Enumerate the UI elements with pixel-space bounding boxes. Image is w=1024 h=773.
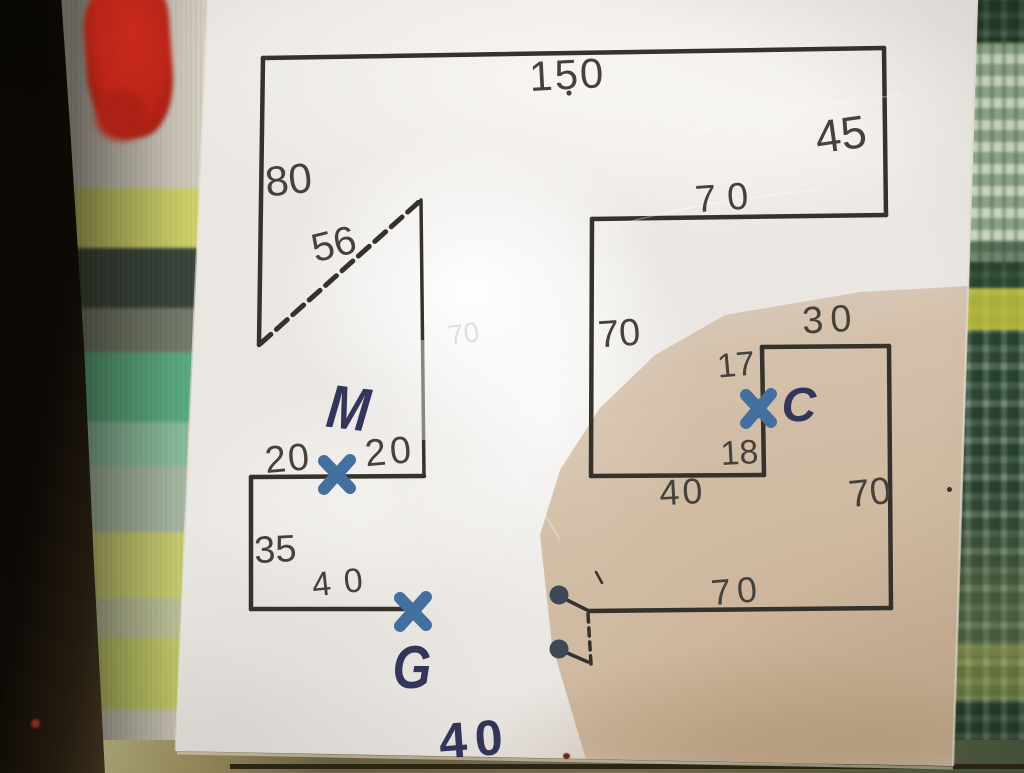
svg-text:40: 40 [437,709,512,770]
svg-text:20: 20 [363,429,417,475]
svg-text:20: 20 [263,436,313,482]
svg-text:C: C [782,379,818,432]
svg-text:35: 35 [253,528,297,572]
svg-text:30: 30 [801,298,859,343]
svg-text:17: 17 [716,344,757,385]
svg-text:G: G [393,633,432,701]
svg-text:70: 70 [597,312,642,357]
svg-text:40: 40 [658,470,706,513]
svg-text:70: 70 [694,175,761,221]
svg-text:45: 45 [812,105,870,164]
svg-text:70: 70 [446,316,481,351]
svg-text:70: 70 [709,568,764,613]
svg-text:40: 40 [310,560,377,604]
svg-text:80: 80 [263,154,314,206]
svg-text:18: 18 [720,433,760,473]
svg-text:70: 70 [847,470,893,516]
